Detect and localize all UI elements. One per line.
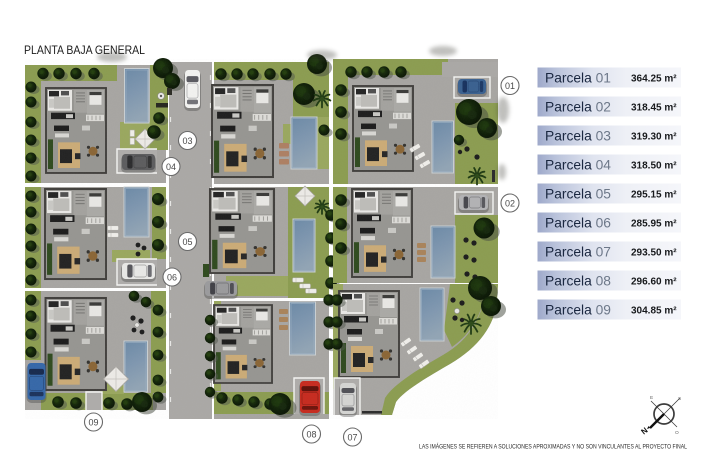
svg-text:S: S <box>678 396 681 402</box>
svg-text:Parcela 01: Parcela 01 <box>545 70 611 85</box>
svg-text:Parcela 03: Parcela 03 <box>545 128 611 143</box>
svg-text:05: 05 <box>182 237 192 247</box>
svg-text:319.30 m²: 319.30 m² <box>631 131 677 142</box>
svg-text:O: O <box>675 430 679 436</box>
svg-text:06: 06 <box>167 272 177 282</box>
svg-text:E: E <box>650 395 653 401</box>
svg-text:285.95 m²: 285.95 m² <box>631 218 677 229</box>
svg-text:296.60 m²: 296.60 m² <box>631 276 677 287</box>
svg-text:01: 01 <box>505 81 515 91</box>
svg-text:318.45 m²: 318.45 m² <box>631 102 677 113</box>
svg-text:Parcela 09: Parcela 09 <box>545 302 611 317</box>
svg-text:295.15 m²: 295.15 m² <box>631 189 677 200</box>
svg-text:09: 09 <box>88 417 98 427</box>
svg-text:Parcela 02: Parcela 02 <box>545 99 611 114</box>
svg-text:Parcela 07: Parcela 07 <box>545 244 611 259</box>
svg-text:02: 02 <box>505 198 515 208</box>
svg-text:Parcela 08: Parcela 08 <box>545 273 611 288</box>
svg-text:07: 07 <box>347 432 357 442</box>
svg-text:LAS IMÁGENES SE REFIEREN A SOL: LAS IMÁGENES SE REFIEREN A SOLUCIONES AP… <box>419 444 687 451</box>
svg-text:Parcela 04: Parcela 04 <box>545 157 611 172</box>
svg-text:318.50 m²: 318.50 m² <box>631 160 677 171</box>
svg-text:04: 04 <box>166 162 176 172</box>
svg-text:PLANTA BAJA GENERAL: PLANTA BAJA GENERAL <box>24 43 145 57</box>
svg-text:364.25 m²: 364.25 m² <box>631 73 677 84</box>
svg-text:03: 03 <box>182 136 192 146</box>
svg-text:304.85 m²: 304.85 m² <box>631 305 677 316</box>
svg-text:293.50 m²: 293.50 m² <box>631 247 677 258</box>
svg-text:08: 08 <box>306 429 316 439</box>
svg-text:Parcela 06: Parcela 06 <box>545 215 611 230</box>
svg-text:Parcela 05: Parcela 05 <box>545 186 611 201</box>
